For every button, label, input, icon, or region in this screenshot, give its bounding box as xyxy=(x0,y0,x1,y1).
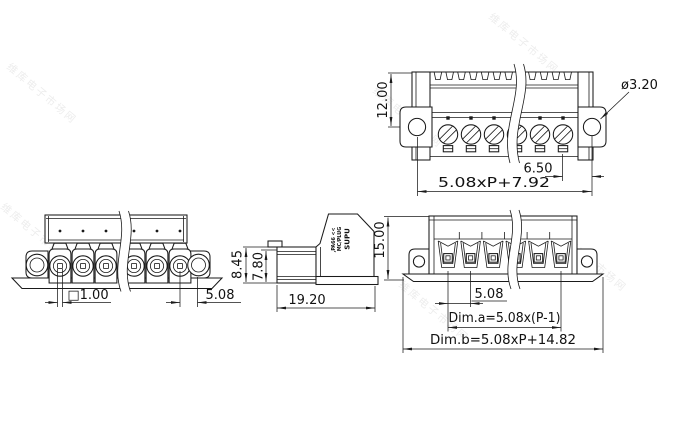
vent-dot xyxy=(156,230,159,233)
latch-tab xyxy=(268,241,282,247)
drawing-svg: 维库电子市场网维库电子市场网维库电子市场网维库电子市场网维库电子市场网维库电子市… xyxy=(0,0,680,440)
castellation-tooth xyxy=(493,72,501,80)
castellation-tooth xyxy=(505,72,513,80)
clamp-bump xyxy=(75,243,91,249)
contact-outer xyxy=(96,256,116,276)
clamp-bump xyxy=(149,243,165,249)
dim-header-pitch: 5.08 xyxy=(475,287,504,302)
dim-plug-pitch: 5.08 xyxy=(206,288,235,303)
screw-head xyxy=(553,125,572,144)
clamp-square xyxy=(489,254,498,263)
dim-plug-height: 8.45 xyxy=(231,250,246,279)
dim-depth: 19.20 xyxy=(288,293,325,308)
left-mounting-hole xyxy=(413,256,424,267)
part-marking-brand: SUPU xyxy=(343,228,351,250)
front-view-header xyxy=(403,210,603,289)
base-plate xyxy=(403,274,603,282)
clamp-square xyxy=(444,254,453,263)
vent-dot xyxy=(59,230,62,233)
castellation-tooth xyxy=(458,72,466,80)
left-flange-hole xyxy=(26,254,48,276)
plug-rear-band xyxy=(45,215,187,243)
dim-inner-height: 7.80 xyxy=(252,252,267,281)
dimension-layer: 12.00 ø3.20 6.50 5.08xP+7.92 □1.00 5.08 … xyxy=(45,73,658,353)
pin-mark xyxy=(492,116,495,119)
clamp-square xyxy=(466,254,475,263)
contact-outer xyxy=(50,256,70,276)
dim-b: Dim.b=5.08xP+14.82 xyxy=(430,333,576,348)
castellation-tooth xyxy=(446,72,454,80)
technical-drawing-canvas: 维库电子市场网维库电子市场网维库电子市场网维库电子市场网维库电子市场网维库电子市… xyxy=(0,0,680,440)
castellation-tooth xyxy=(470,72,478,80)
top-view xyxy=(400,64,606,163)
front-view-plug xyxy=(12,211,222,292)
clamp-bump xyxy=(98,243,114,249)
castellation-tooth xyxy=(540,72,548,80)
dim-body-height: 12.00 xyxy=(376,81,391,118)
clamp-square xyxy=(534,254,543,263)
vent-dot xyxy=(133,230,136,233)
clamp-square xyxy=(557,254,566,263)
right-mounting-hole xyxy=(583,118,600,135)
pin-mark xyxy=(538,116,541,119)
watermark-text: 维库电子市场网 xyxy=(4,60,79,126)
solder-foot xyxy=(316,277,378,285)
top-view-repeats xyxy=(434,72,573,152)
dim-a: Dim.a=5.08x(P-1) xyxy=(449,311,561,326)
dim-pin-square: □1.00 xyxy=(67,288,108,303)
part-marking-series: MC/PLUG xyxy=(337,227,343,251)
contact-outer xyxy=(73,256,93,276)
pin-mark xyxy=(469,116,472,119)
screw-head xyxy=(530,125,549,144)
pin-mark xyxy=(561,116,564,119)
dim-overall-width: 5.08xP+7.92 xyxy=(438,176,550,191)
castellation-tooth xyxy=(481,72,489,80)
side-view: SUPU MC/PLUG ,PA66 << xyxy=(268,214,378,285)
pin-mark xyxy=(446,116,449,119)
plug-body-side xyxy=(277,247,316,283)
vent-dot xyxy=(179,230,182,233)
dim-hole-to-pin: 6.50 xyxy=(524,162,553,177)
part-marking-material: ,PA66 << xyxy=(331,228,337,253)
screw-head xyxy=(484,125,503,144)
vent-dot xyxy=(105,230,108,233)
castellation-tooth xyxy=(434,72,442,80)
screw-head xyxy=(438,125,457,144)
castellation-tooth xyxy=(529,72,537,80)
clamp-bump xyxy=(52,243,68,249)
castellation-tooth xyxy=(564,72,572,80)
left-mounting-hole xyxy=(408,118,425,135)
right-flange-hole xyxy=(188,254,210,276)
contact-outer xyxy=(147,256,167,276)
dim-total-height: 15.00 xyxy=(373,221,388,258)
right-mounting-hole xyxy=(581,256,592,267)
vent-dot xyxy=(82,230,85,233)
dim-hole-diameter: ø3.20 xyxy=(621,78,658,93)
clamp-bump xyxy=(172,243,188,249)
screw-head xyxy=(461,125,480,144)
